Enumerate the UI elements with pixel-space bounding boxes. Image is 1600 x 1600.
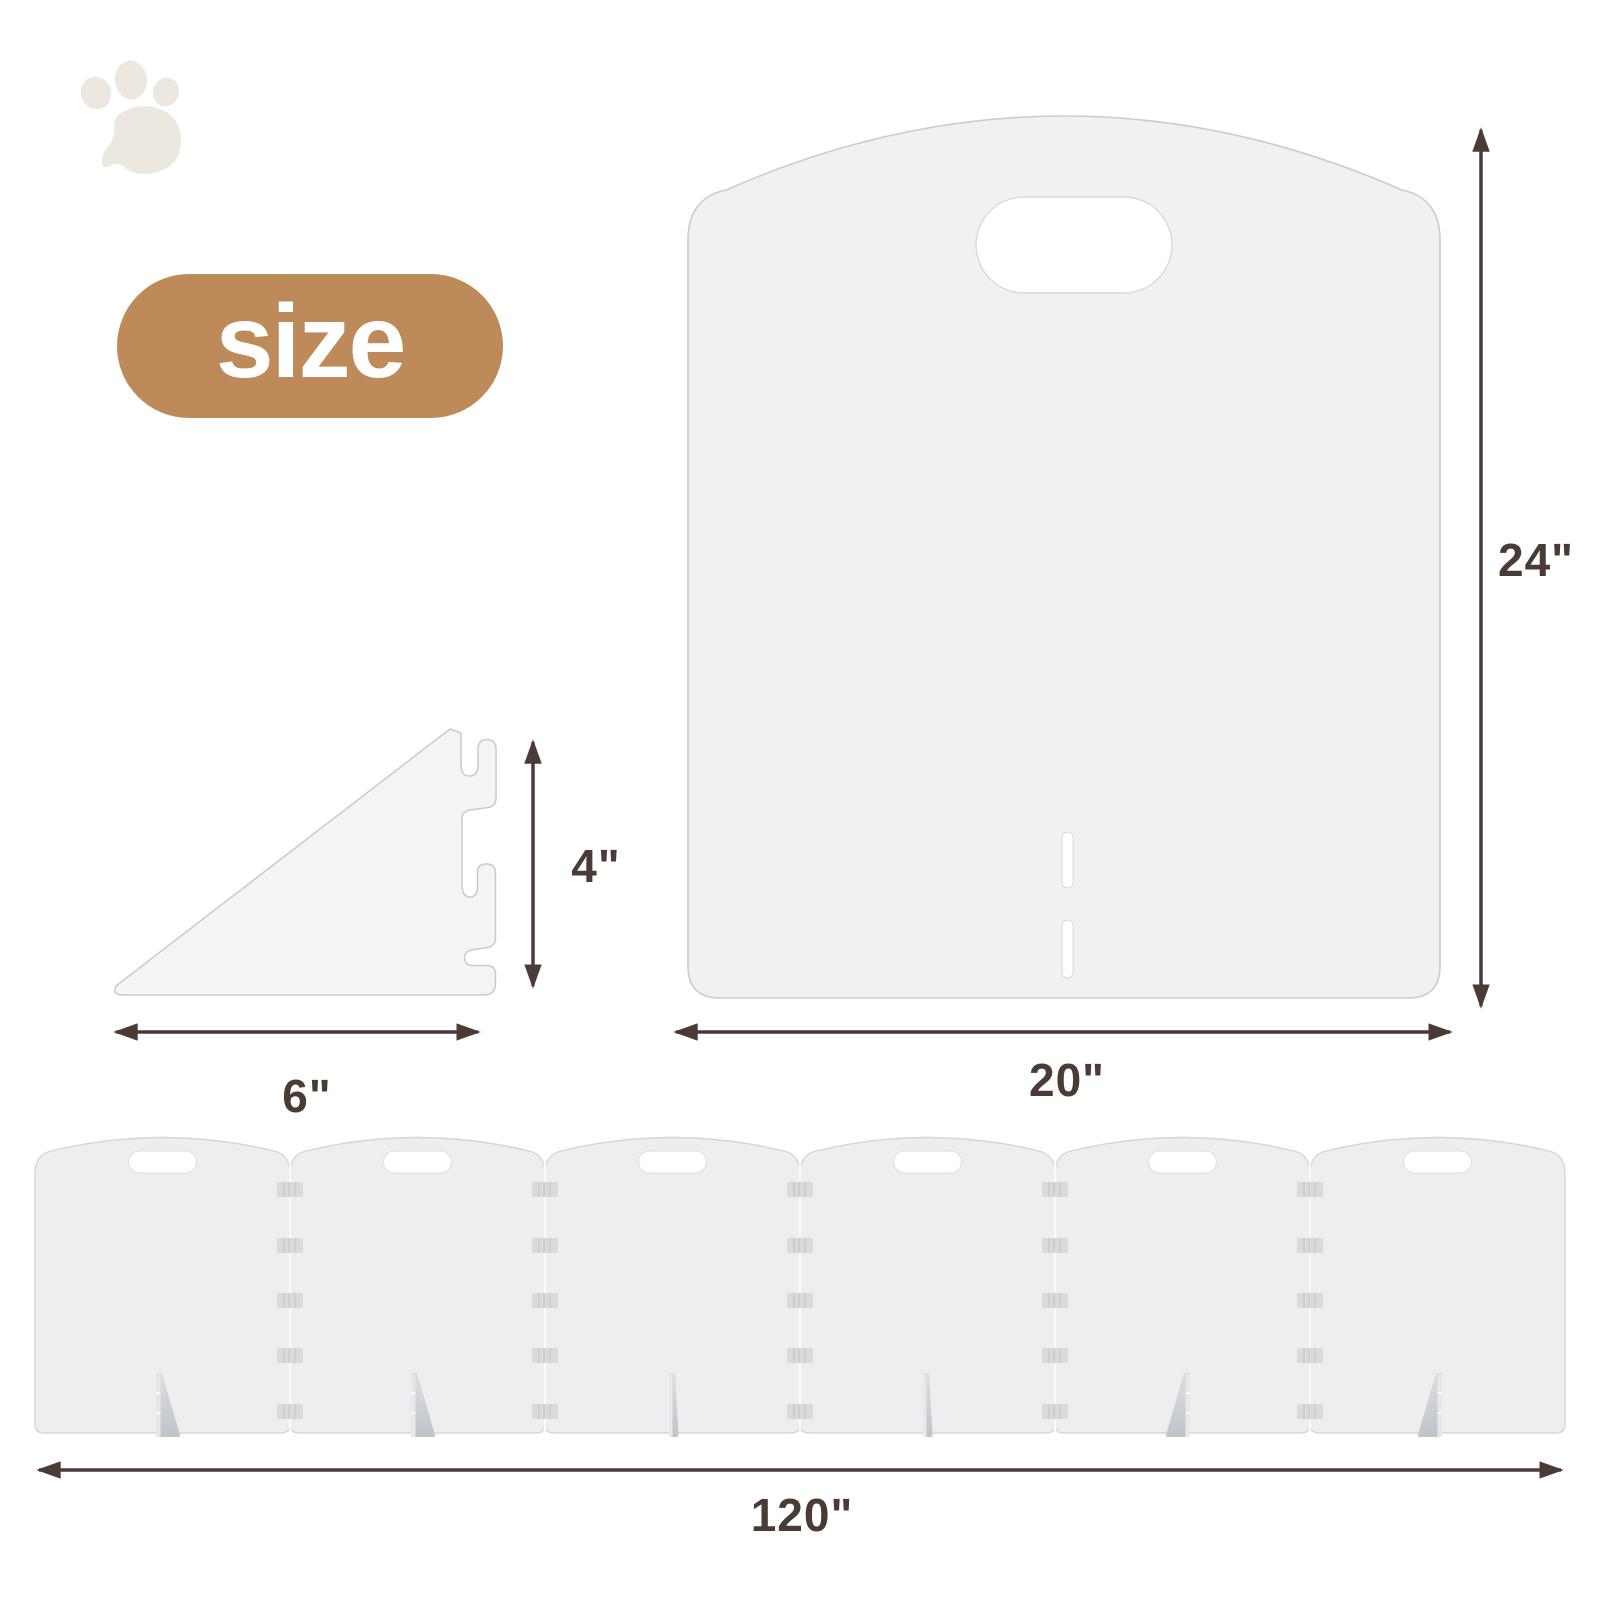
diagram-scene xyxy=(0,0,1600,1600)
row-panel-handle xyxy=(894,1151,962,1173)
size-badge-label: size xyxy=(216,290,405,402)
row-panel-handle xyxy=(1404,1151,1472,1173)
support-bracket xyxy=(115,729,496,995)
panel-width-label: 20" xyxy=(1029,1053,1105,1107)
panel-height-label: 24" xyxy=(1498,533,1574,587)
panel-slot-upper xyxy=(1062,832,1073,888)
panel-row xyxy=(35,1138,1565,1438)
row-panel-handle xyxy=(384,1151,452,1173)
size-badge: size xyxy=(117,274,503,418)
large-panel xyxy=(688,116,1440,998)
bracket-width-label: 6" xyxy=(282,1069,331,1123)
row-panel-handle xyxy=(129,1151,197,1173)
total-width-label: 120" xyxy=(751,1488,854,1542)
paw-icon xyxy=(76,59,183,174)
row-panel-handle xyxy=(639,1151,707,1173)
size-diagram: size 24" 20" 4" 6" 120" xyxy=(0,0,1600,1600)
panel-slot-lower xyxy=(1062,920,1073,978)
panel-handle-cutout xyxy=(976,197,1172,293)
bracket-height-label: 4" xyxy=(571,839,620,893)
row-panel-handle xyxy=(1149,1151,1217,1173)
